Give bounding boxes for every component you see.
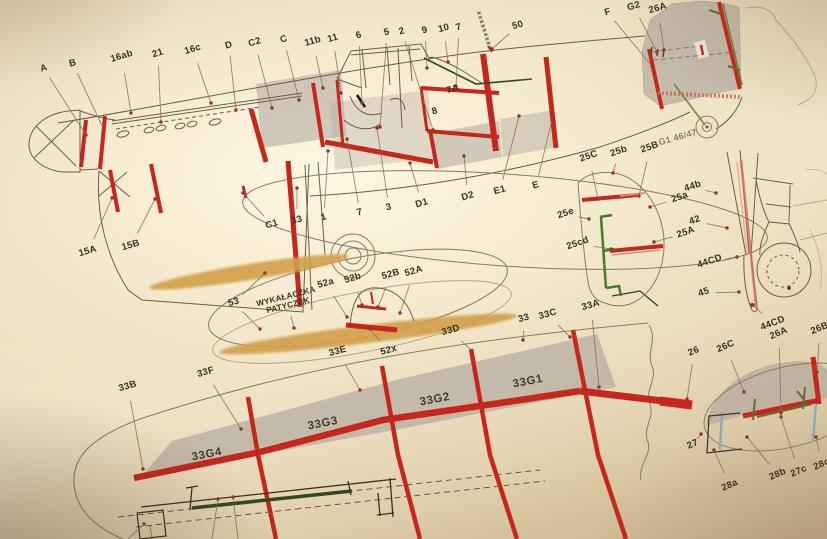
- part-label-d2: D2: [460, 190, 475, 204]
- part-label-28b: 28b: [768, 467, 788, 483]
- part-label-25a: 25A: [676, 225, 697, 241]
- part-label-16ab: 16ab: [110, 49, 135, 66]
- part-label-33e: 33E: [328, 345, 348, 360]
- part-label-16c: 16c: [183, 43, 202, 58]
- part-label-21: 21: [151, 47, 165, 60]
- part-label-33: 33: [290, 214, 304, 227]
- part-label-27c: 27c: [789, 464, 809, 480]
- part-label-b: B: [68, 58, 78, 70]
- part-label-42: 42: [688, 214, 702, 228]
- part-label-52b: 52B: [381, 267, 401, 282]
- part-label-33g4: 33G4: [191, 446, 223, 464]
- paper-model-instruction-sheet: AB16ab2116cDC2C11b11652910750FG226A7A8G1…: [0, 0, 827, 539]
- label-layer: AB16ab2116cDC2C11b11652910750FG226A7A8G1…: [0, 0, 827, 539]
- part-label-9: 9: [421, 25, 429, 37]
- part-label-26: 26: [687, 345, 701, 359]
- part-label-25b: 25B: [640, 140, 661, 156]
- part-label-11b: 11b: [304, 35, 323, 50]
- part-label-25cd: 25cd: [565, 235, 590, 252]
- part-label-a: A: [39, 63, 49, 75]
- part-label-15a: 15A: [78, 244, 98, 259]
- part-label-28c: 28c: [812, 457, 827, 473]
- part-label-15b: 15B: [121, 238, 141, 253]
- part-label-33g3: 33G3: [307, 415, 339, 433]
- part-label-45: 45: [697, 286, 711, 300]
- part-label-c: C: [279, 34, 289, 46]
- part-label-33c: 33C: [538, 307, 558, 322]
- part-label-26c: 26C: [716, 339, 737, 356]
- part-label-27: 27: [686, 438, 700, 452]
- part-label-11: 11: [326, 33, 339, 46]
- part-label-5: 5: [383, 27, 391, 39]
- part-label-7: 7: [455, 22, 463, 34]
- part-label-53: 53: [227, 296, 241, 309]
- part-label-10: 10: [437, 22, 451, 35]
- part-label-e: E: [531, 180, 540, 192]
- part-label-g2: G2: [626, 0, 642, 14]
- part-label-52b: 52b: [343, 272, 362, 287]
- part-label-52x: 52x: [380, 344, 399, 359]
- part-label-f: F: [604, 7, 613, 19]
- part-label-52a: 52a: [317, 277, 336, 292]
- part-label-33d: 33D: [441, 323, 461, 338]
- part-label-28a: 28a: [720, 478, 740, 494]
- part-label-c2: C2: [247, 36, 262, 50]
- part-label-33g1: 33G1: [512, 373, 544, 391]
- part-label-6: 6: [355, 30, 363, 42]
- part-label-1: 1: [320, 212, 328, 224]
- part-label-33a: 33A: [581, 298, 601, 313]
- part-label-44b: 44b: [683, 179, 703, 194]
- part-label-7: 7: [356, 207, 364, 219]
- part-label-25e: 25e: [556, 206, 575, 221]
- part-label-wyka-aczka-patyczek: WYKAŁACZKA PATYCZEK: [255, 285, 318, 317]
- part-label-33b: 33B: [118, 379, 138, 394]
- part-label-d: D: [224, 40, 234, 52]
- part-label-c1: C1: [264, 218, 279, 232]
- part-label-33g2: 33G2: [419, 391, 451, 409]
- part-label-8: 8: [431, 106, 439, 118]
- part-label-g1-46-47: G1 46/47: [658, 128, 699, 148]
- part-label-33: 33: [517, 312, 531, 325]
- part-label-d1: D1: [414, 197, 429, 211]
- part-label-25c: 25C: [579, 149, 600, 165]
- part-label-3: 3: [385, 202, 393, 214]
- part-label-50: 50: [511, 19, 525, 32]
- part-label-25b: 25b: [609, 144, 629, 159]
- part-label-52a: 52A: [404, 264, 424, 279]
- part-label-7a: 7A: [445, 83, 460, 97]
- part-label-26b: 26B: [810, 321, 827, 338]
- part-label-2: 2: [398, 26, 406, 38]
- part-label-e1: E1: [493, 184, 508, 197]
- part-label-44cd: 44CD: [696, 253, 724, 271]
- part-label-26a: 26A: [648, 1, 668, 16]
- part-label-33f: 33F: [196, 366, 215, 381]
